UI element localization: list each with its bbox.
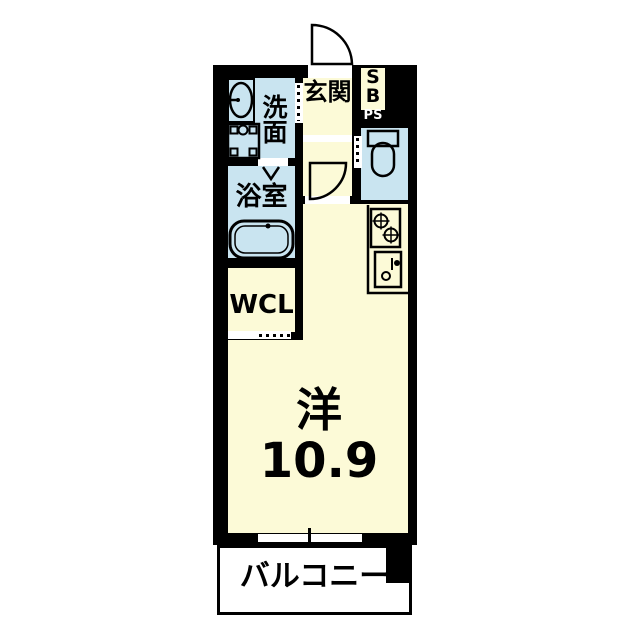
room-door-icon [310, 163, 346, 199]
washing-machine-pan-icon [228, 124, 259, 158]
floor-plan: 玄関 S B PS 洗面 浴室 WCL 洋 10.9 バルコニー [0, 0, 640, 640]
pipe-space-label: PS [356, 109, 390, 123]
balcony-label: バルコニー [217, 561, 412, 593]
bathtub-icon [230, 221, 293, 258]
main-room-size: 10.9 [228, 436, 410, 486]
closet-label: WCL [228, 292, 295, 319]
bathroom-label: 浴室 [228, 184, 295, 211]
bathroom-door-icon [263, 167, 279, 179]
main-room-label: 洋 [228, 386, 410, 434]
shoe-box-label-bottom: B [361, 87, 385, 107]
washroom-label: 洗面 [259, 83, 286, 155]
entrance-label: 玄関 [303, 80, 352, 105]
kitchen-sink-icon [375, 252, 401, 287]
stove-icon [371, 209, 400, 247]
shoe-box-ticks [352, 77, 361, 99]
toilet-icon [368, 131, 398, 176]
washbasin-icon [228, 79, 254, 122]
entrance-door-icon [312, 25, 352, 64]
